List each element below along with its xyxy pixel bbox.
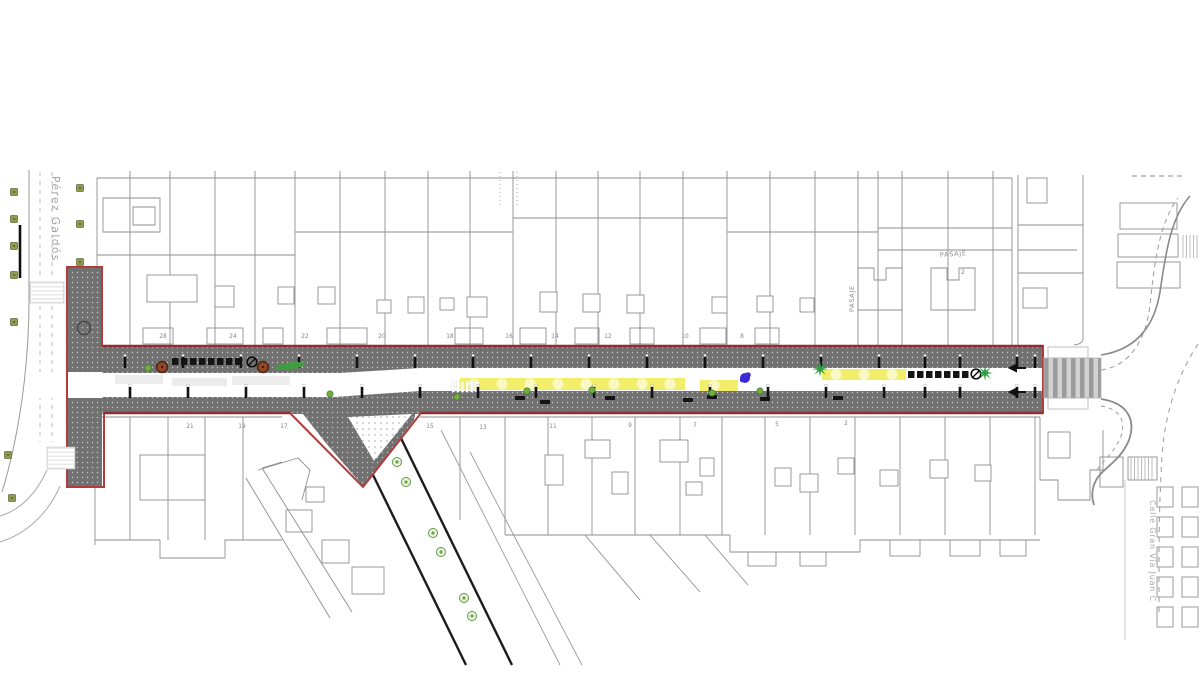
bollard [187,387,190,398]
bollard [704,357,707,368]
yellow-highlight [859,369,870,380]
bollard-cap [472,354,475,356]
bollard-cap [129,384,132,386]
bench [833,396,843,400]
pasaje-building-2 [931,268,975,310]
bollard-cap [530,354,533,356]
building-number: 19 [238,424,246,430]
tree-olive-center [13,218,15,220]
bollard [646,357,649,368]
bollard [535,387,538,398]
bollard [472,357,475,368]
bush [709,390,715,396]
building-number: 11 [549,424,557,430]
parked-vehicle [190,358,197,365]
bollard-cap [878,354,881,356]
crosswalk-left-bottom [47,447,75,469]
parked-vehicle [917,371,924,378]
bollard-cap [245,384,248,386]
tree-olive-center [79,187,81,189]
building-number: 22 [301,334,309,340]
bollard [1016,357,1019,368]
bollard [651,387,654,398]
label-pasaje-horizontal: PASAJE [940,249,967,259]
buildings-south-left [95,417,282,558]
tree-deciduous-center [404,480,407,483]
bollard-cap [825,384,828,386]
building-number: 21 [186,424,194,430]
bollard-cap [924,384,927,386]
parked-vehicle [962,371,969,378]
building-number: 15 [426,424,434,430]
parked-vehicle [199,358,206,365]
bollard-cap [187,384,190,386]
bollard-cap [1016,384,1019,386]
bollard-cap [298,354,301,356]
tree-deciduous-center [462,596,465,599]
bollard [1034,387,1037,398]
buildings-south-right [420,417,1157,600]
bollard [767,387,770,398]
tree-brown-center [262,366,264,368]
bollard-cap [535,384,538,386]
bollard [245,387,248,398]
bollard-cap [124,354,127,356]
bush [145,365,151,371]
building-number: 24 [229,334,237,340]
yellow-highlight [831,369,842,380]
building-number: 20 [378,334,386,340]
bollard [303,387,306,398]
parked-vehicle [208,358,215,365]
parked-vehicle [217,358,224,365]
bollard [762,357,765,368]
label-pasaje-vertical: PASAJE [848,285,856,312]
bench [540,400,550,404]
crosswalk-left-top [30,282,64,303]
bollard-cap [767,384,770,386]
building-number: 9 [628,423,632,429]
tree-olive-center [13,321,15,323]
bollard-cap [303,384,306,386]
tree-olive-center [11,497,13,499]
bollard-cap [646,354,649,356]
tree-deciduous-center [431,531,434,534]
parked-vehicle [172,358,179,365]
bollard-cap [709,384,712,386]
crosswalk-right-end [1044,347,1101,409]
building-number: 16 [505,334,513,340]
bollard-cap [356,354,359,356]
street-label-gran-via: Calle Gran Vía Juan C [1148,500,1157,602]
tree-deciduous-center [439,550,442,553]
bollard-cap [924,354,927,356]
building-number: 2 [844,421,848,427]
bollard-cap [959,354,962,356]
tree-deciduous-center [395,460,398,463]
bollard [124,357,127,368]
yellow-highlight [665,379,676,390]
yellow-highlight [497,379,508,390]
parked-vehicle [908,371,915,378]
bollard-cap [419,384,422,386]
bush [524,388,530,394]
bollard-cap [1034,384,1037,386]
bush [757,388,763,394]
bollard [959,387,962,398]
building-number: 5 [775,422,779,428]
bollard [356,357,359,368]
bollard [588,357,591,368]
bollard [959,357,962,368]
tree-olive-center [79,223,81,225]
parked-vehicle [226,358,233,365]
bollard-cap [1016,354,1019,356]
bollard [825,387,828,398]
yellow-highlight [887,369,898,380]
parked-vehicle [953,371,960,378]
bollard [477,387,480,398]
parked-vehicle [944,371,951,378]
tree-olive-center [79,261,81,263]
bollard-cap [240,354,243,356]
yellow-highlight [637,379,648,390]
bench [683,398,693,402]
bush [327,391,333,397]
bollard-cap [1034,354,1037,356]
yellow-highlight [553,379,564,390]
diagonal-curb-east [396,428,512,665]
bollard [530,357,533,368]
building-number: 12 [604,334,612,340]
bollard-cap [182,354,185,356]
tree-olive-center [13,274,15,276]
bollard-cap [593,384,596,386]
bollard [129,387,132,398]
tree-deciduous-center [470,614,473,617]
site-plan-svg: Pérez Galdós Calle Gran Vía Juan C PASAJ… [0,0,1200,673]
buildings-north [97,171,1012,345]
street-label-perez-galdos: Pérez Galdós [49,176,61,262]
building-courtyards [147,275,814,317]
building-number: 8 [740,334,744,340]
tree-olive-center [13,191,15,193]
art-object [745,372,751,378]
bollard [878,357,881,368]
yellow-highlight [609,379,620,390]
bollard-cap [361,384,364,386]
bollard-cap [959,384,962,386]
palm-tree [977,365,993,381]
bollard-cap [883,384,886,386]
bollard-cap [651,384,654,386]
bollard-cap [704,354,707,356]
bench [605,396,615,400]
building-number: 13 [479,425,487,431]
tree-olive-center [7,454,9,456]
tree-olive-center [13,245,15,247]
site-plan-canvas: Pérez Galdós Calle Gran Vía Juan C PASAJ… [0,0,1200,673]
bollard [1034,357,1037,368]
parked-vehicle [926,371,933,378]
bush [589,387,595,393]
pasaje-building-1 [858,268,902,310]
art-object [740,378,744,382]
bollard-cap [588,354,591,356]
building-number: 17 [280,424,288,430]
bollard-cap [414,354,417,356]
bollard [361,387,364,398]
bollard [419,387,422,398]
bollard [240,357,243,368]
buildings-top-right [1018,175,1197,345]
bollard-cap [762,354,765,356]
building-number: 2 [961,270,965,276]
bollard [1016,387,1019,398]
bollard-cap [477,384,480,386]
bollard [924,387,927,398]
bollard [414,357,417,368]
building-number: 7 [693,423,697,429]
bench [515,396,525,400]
right-street-parking [1125,480,1198,640]
building-number: 14 [551,334,559,340]
palm-tree [812,361,828,377]
bush [454,394,460,400]
building-courtyards-south [545,440,991,495]
bollard [182,357,185,368]
building-number: 10 [681,334,689,340]
bollard-cap [820,354,823,356]
bollard [924,357,927,368]
building-number: 18 [446,334,454,340]
bollard [883,387,886,398]
tree-brown-center [161,366,163,368]
parked-vehicle [935,371,942,378]
building-number: 28 [159,334,167,340]
